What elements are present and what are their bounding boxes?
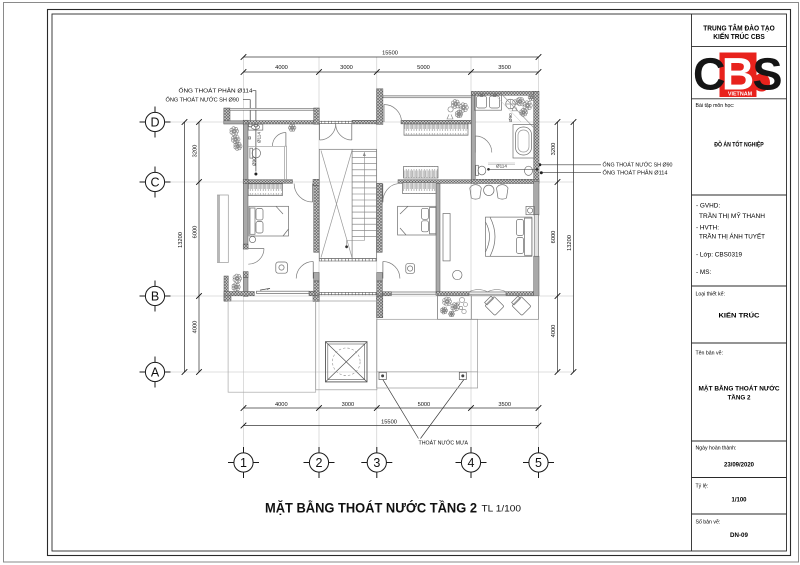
svg-text:Số bản vẽ:: Số bản vẽ: bbox=[696, 520, 721, 526]
svg-text:MẶT BẰNG THOÁT NƯỚC: MẶT BẰNG THOÁT NƯỚC bbox=[699, 384, 780, 393]
svg-text:4: 4 bbox=[468, 456, 475, 470]
svg-text:Ngày hoàn thành:: Ngày hoàn thành: bbox=[696, 446, 737, 452]
svg-text:2: 2 bbox=[316, 456, 323, 470]
svg-text:13200: 13200 bbox=[567, 235, 573, 251]
svg-text:4000: 4000 bbox=[275, 65, 288, 71]
svg-text:3: 3 bbox=[373, 456, 380, 470]
svg-text:3200: 3200 bbox=[193, 145, 199, 158]
svg-text:ỐNG THOÁT PHÂN Ø114: ỐNG THOÁT PHÂN Ø114 bbox=[603, 170, 669, 177]
svg-text:3000: 3000 bbox=[342, 402, 355, 408]
svg-text:ĐỒ ÁN TỐT NGHIỆP: ĐỒ ÁN TỐT NGHIỆP bbox=[714, 141, 764, 149]
svg-text:KIẾN TRÚC: KIẾN TRÚC bbox=[719, 310, 761, 320]
svg-text:- GVHD:: - GVHD: bbox=[696, 203, 720, 210]
svg-text:- Lớp: CBS0319: - Lớp: CBS0319 bbox=[696, 252, 743, 259]
svg-text:5000: 5000 bbox=[417, 65, 430, 71]
svg-text:13200: 13200 bbox=[178, 232, 184, 248]
svg-text:Ø114: Ø114 bbox=[496, 164, 507, 169]
svg-text:Loại thiết kế:: Loại thiết kế: bbox=[696, 292, 725, 298]
svg-text:3500: 3500 bbox=[498, 402, 511, 408]
svg-text:ỐNG THOÁT PHÂN Ø114: ỐNG THOÁT PHÂN Ø114 bbox=[179, 88, 254, 95]
svg-text:Ø90: Ø90 bbox=[252, 157, 257, 166]
svg-text:1/100: 1/100 bbox=[731, 498, 747, 504]
svg-text:6000: 6000 bbox=[551, 231, 557, 244]
svg-text:Ø90: Ø90 bbox=[508, 113, 513, 122]
svg-text:- MS:: - MS: bbox=[696, 269, 711, 276]
svg-text:3000: 3000 bbox=[340, 65, 353, 71]
svg-text:Tên bản vẽ:: Tên bản vẽ: bbox=[696, 351, 723, 357]
svg-text:Tỷ lệ:: Tỷ lệ: bbox=[696, 483, 709, 490]
svg-text:ỐNG THOÁT NƯỚC SH Ø90: ỐNG THOÁT NƯỚC SH Ø90 bbox=[166, 97, 240, 104]
svg-text:3500: 3500 bbox=[498, 65, 511, 71]
svg-text:1: 1 bbox=[240, 456, 247, 470]
svg-text:5000: 5000 bbox=[418, 402, 431, 408]
svg-text:5: 5 bbox=[535, 456, 542, 470]
svg-text:15500: 15500 bbox=[381, 420, 397, 426]
svg-text:S: S bbox=[752, 49, 782, 100]
svg-text:6000: 6000 bbox=[193, 226, 199, 239]
svg-text:3200: 3200 bbox=[551, 143, 557, 156]
svg-text:4000: 4000 bbox=[193, 321, 199, 334]
svg-text:ỐNG THOÁT NƯỚC SH Ø90: ỐNG THOÁT NƯỚC SH Ø90 bbox=[603, 162, 674, 169]
svg-text:B: B bbox=[151, 290, 159, 304]
svg-text:TẦNG 2: TẦNG 2 bbox=[727, 392, 751, 402]
svg-text:TRẦN THỊ MỸ THANH: TRẦN THỊ MỸ THANH bbox=[699, 210, 765, 220]
svg-text:TRẦN THỊ ÁNH TUYẾT: TRẦN THỊ ÁNH TUYẾT bbox=[699, 231, 765, 241]
svg-text:23/09/2020: 23/09/2020 bbox=[724, 463, 755, 469]
svg-text:VIETNAM: VIETNAM bbox=[728, 92, 753, 98]
svg-text:TRUNG TÂM ĐÀO TẠO: TRUNG TÂM ĐÀO TẠO bbox=[703, 24, 775, 33]
svg-text:- HVTH:: - HVTH: bbox=[696, 225, 719, 232]
svg-text:THOÁT NƯỚC MƯA: THOÁT NƯỚC MƯA bbox=[419, 439, 469, 446]
svg-text:D: D bbox=[150, 116, 159, 130]
svg-text:TL 1/100: TL 1/100 bbox=[482, 504, 522, 514]
svg-text:KIẾN TRÚC CBS: KIẾN TRÚC CBS bbox=[713, 31, 765, 41]
svg-text:4000: 4000 bbox=[551, 325, 557, 338]
svg-text:C: C bbox=[150, 176, 159, 190]
svg-text:Ø114: Ø114 bbox=[257, 132, 262, 143]
svg-text:DN-09: DN-09 bbox=[730, 532, 748, 539]
svg-text:Bài tập môn học:: Bài tập môn học: bbox=[696, 103, 735, 109]
svg-text:15500: 15500 bbox=[382, 50, 398, 56]
svg-text:MẶT BẰNG THOÁT NƯỚC TẦNG 2: MẶT BẰNG THOÁT NƯỚC TẦNG 2 bbox=[265, 499, 477, 516]
svg-text:A: A bbox=[151, 366, 160, 380]
svg-text:4000: 4000 bbox=[275, 402, 288, 408]
svg-text:C: C bbox=[693, 49, 726, 100]
